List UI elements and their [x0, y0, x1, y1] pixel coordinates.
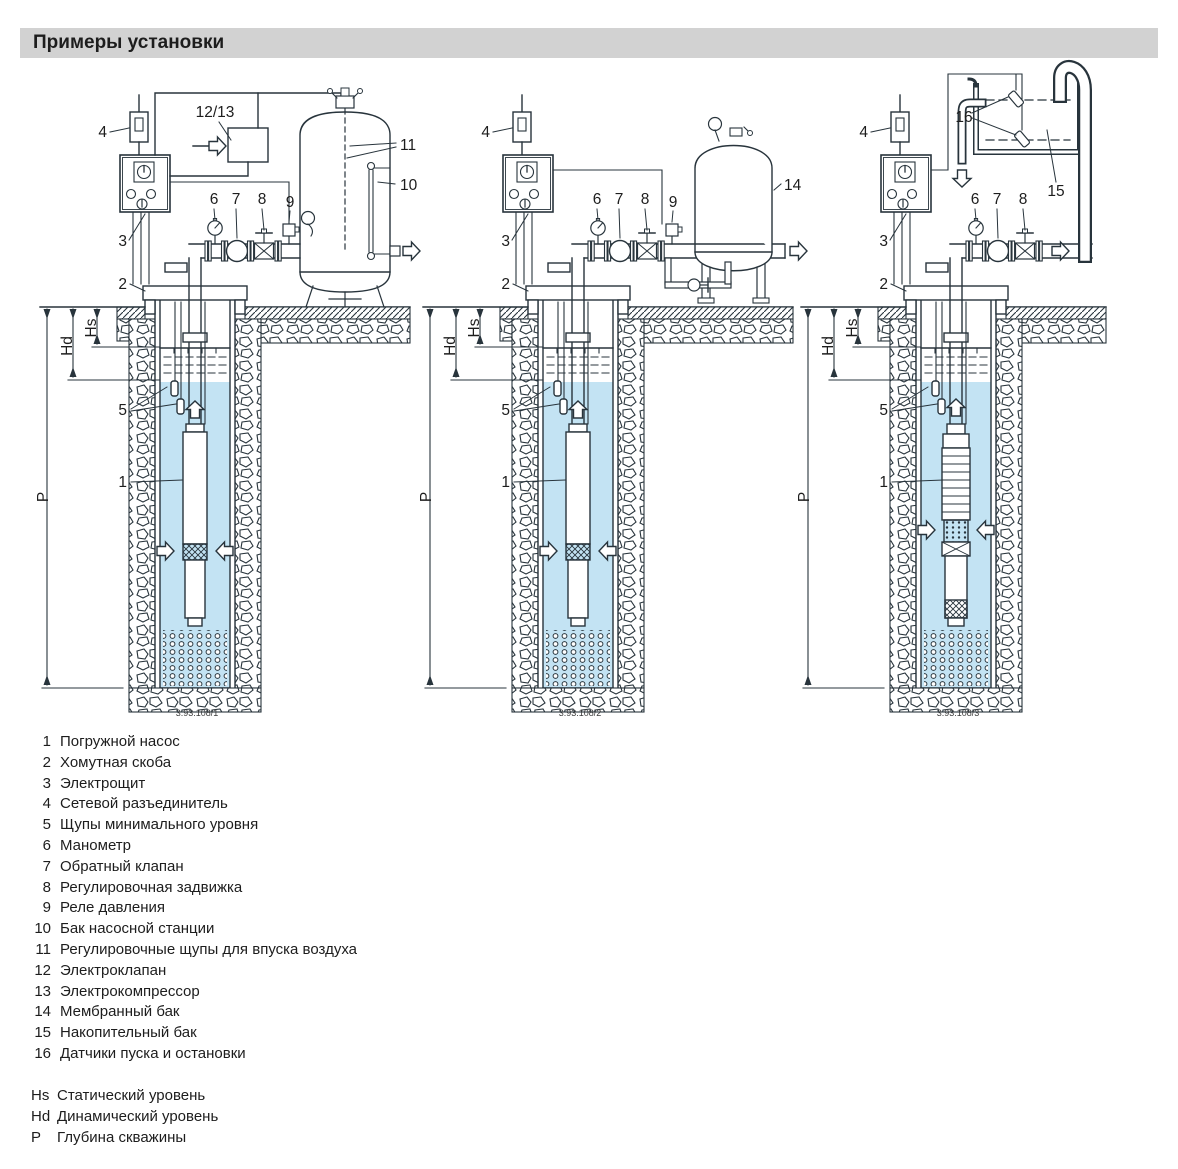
label-4: 4 [859, 124, 868, 141]
figure-number: 3.93.108/1 [176, 708, 219, 718]
legend-item-text: Сетевой разъединитель [60, 794, 228, 815]
label-8: 8 [641, 191, 650, 208]
legend-item-text: Манометр [60, 836, 131, 857]
legend-item-number: 16 [31, 1044, 51, 1065]
legend-item-number: 10 [31, 919, 51, 940]
legend-item: 1Погружной насос [31, 732, 357, 753]
label-1: 1 [879, 474, 888, 491]
legend-item-number: 4 [31, 794, 51, 815]
legend-item: 5Щупы минимального уровня [31, 815, 357, 836]
station-tank-icon [300, 88, 420, 307]
legend-item-text: Бак насосной станции [60, 919, 214, 940]
legend-item-number: 2 [31, 753, 51, 774]
label-5: 5 [879, 402, 888, 419]
legend-item-text: Мембранный бак [60, 1002, 179, 1023]
figure-2: 4 3 2 5 1 6 7 8 9 14 Hs Hd P 3.93.108/2 [418, 95, 807, 718]
legend-item-text: Хомутная скоба [60, 753, 171, 774]
label-5: 5 [501, 402, 510, 419]
label-hd: Hd [442, 336, 459, 356]
note-text: Статический уровень [57, 1086, 205, 1107]
legend-item-number: 12 [31, 961, 51, 982]
level-notes: HsСтатический уровень HdДинамический уро… [31, 1086, 218, 1148]
note-key: Hs [31, 1086, 57, 1107]
label-4: 4 [481, 124, 490, 141]
installation-diagrams: 4 3 2 5 1 6 7 8 9 12/13 11 10 Hs Hd P 3.… [0, 0, 1178, 740]
legend-item: 10Бак насосной станции [31, 919, 357, 940]
label-p: P [418, 492, 435, 502]
legend-item-number: 1 [31, 732, 51, 753]
legend-item: 2Хомутная скоба [31, 753, 357, 774]
note-key: P [31, 1128, 57, 1149]
legend-item-text: Накопительный бак [60, 1023, 197, 1044]
label-hd: Hd [820, 336, 837, 356]
label-2: 2 [879, 276, 888, 293]
label-3: 3 [501, 233, 510, 250]
label-3: 3 [879, 233, 888, 250]
note-row: PГлубина скважины [31, 1128, 218, 1149]
legend-item-number: 8 [31, 878, 51, 899]
legend-item: 13Электрокомпрессор [31, 982, 357, 1003]
legend-item-number: 14 [31, 1002, 51, 1023]
legend-item: 12Электроклапан [31, 961, 357, 982]
legend-item-number: 3 [31, 774, 51, 795]
legend-item-number: 11 [31, 940, 51, 961]
label-2: 2 [501, 276, 510, 293]
label-7: 7 [615, 191, 624, 208]
legend-item: 15Накопительный бак [31, 1023, 357, 1044]
label-6: 6 [971, 191, 980, 208]
note-row: HdДинамический уровень [31, 1107, 218, 1128]
label-3: 3 [118, 233, 127, 250]
legend-item-number: 5 [31, 815, 51, 836]
legend-item: 7Обратный клапан [31, 857, 357, 878]
compressor-box-icon [155, 93, 341, 224]
legend-item: 8Регулировочная задвижка [31, 878, 357, 899]
legend-item: 9Реле давления [31, 898, 357, 919]
legend-item: 6Манометр [31, 836, 357, 857]
legend-item-text: Регулировочные щупы для впуска воздуха [60, 940, 357, 961]
legend-item: 4Сетевой разъединитель [31, 794, 357, 815]
legend-item-text: Погружной насос [60, 732, 180, 753]
label-hs: Hs [466, 318, 483, 337]
control-panel-icon [881, 95, 931, 212]
label-9: 9 [286, 194, 295, 211]
label-hs: Hs [83, 318, 100, 337]
legend-item: 3Электрощит [31, 774, 357, 795]
legend-item-text: Датчики пуска и остановки [60, 1044, 246, 1065]
label-p: P [35, 492, 52, 502]
legend-item-number: 9 [31, 898, 51, 919]
label-11: 11 [400, 137, 416, 154]
label-1: 1 [501, 474, 510, 491]
diaphragm-tank-icon [665, 118, 807, 304]
label-12-13: 12/13 [196, 104, 235, 121]
label-hd: Hd [59, 336, 76, 356]
label-4: 4 [98, 124, 107, 141]
legend-item-text: Электроклапан [60, 961, 166, 982]
figure-number: 3.93.108/3 [937, 708, 980, 718]
figure-3: 4 3 2 5 1 6 7 8 16 15 Hs Hd P 3.93.108/3 [796, 67, 1106, 718]
legend-item-number: 15 [31, 1023, 51, 1044]
label-14: 14 [784, 177, 802, 194]
label-6: 6 [593, 191, 602, 208]
legend-item: 16Датчики пуска и остановки [31, 1044, 357, 1065]
legend-item-text: Электрощит [60, 774, 145, 795]
legend-item-text: Электрокомпрессор [60, 982, 200, 1003]
figure-number: 3.93.108/2 [559, 708, 602, 718]
legend-item-text: Регулировочная задвижка [60, 878, 242, 899]
legend-list: 1Погружной насос 2Хомутная скоба 3Электр… [31, 732, 357, 1065]
note-text: Глубина скважины [57, 1128, 186, 1149]
legend-item-number: 6 [31, 836, 51, 857]
label-5: 5 [118, 402, 127, 419]
label-6: 6 [210, 191, 219, 208]
note-row: HsСтатический уровень [31, 1086, 218, 1107]
note-key: Hd [31, 1107, 57, 1128]
legend-item: 11Регулировочные щупы для впуска воздуха [31, 940, 357, 961]
label-8: 8 [258, 191, 267, 208]
label-7: 7 [993, 191, 1002, 208]
legend-item: 14Мембранный бак [31, 1002, 357, 1023]
label-10: 10 [400, 177, 418, 194]
note-text: Динамический уровень [57, 1107, 218, 1128]
label-15: 15 [1047, 183, 1064, 200]
label-9: 9 [669, 194, 678, 211]
legend-item-text: Щупы минимального уровня [60, 815, 258, 836]
control-panel-icon [120, 95, 170, 212]
legend-item-text: Реле давления [60, 898, 165, 919]
label-1: 1 [118, 474, 127, 491]
control-panel-icon [503, 95, 553, 212]
figure-1: 4 3 2 5 1 6 7 8 9 12/13 11 10 Hs Hd P 3.… [35, 88, 420, 718]
label-2: 2 [118, 276, 127, 293]
label-16: 16 [955, 109, 972, 126]
legend-item-text: Обратный клапан [60, 857, 184, 878]
legend-item-number: 13 [31, 982, 51, 1003]
label-8: 8 [1019, 191, 1028, 208]
label-7: 7 [232, 191, 241, 208]
legend-item-number: 7 [31, 857, 51, 878]
label-hs: Hs [844, 318, 861, 337]
label-p: P [796, 492, 813, 502]
storage-tank-icon [931, 67, 1087, 260]
manual-page: Примеры установки [0, 0, 1178, 1169]
